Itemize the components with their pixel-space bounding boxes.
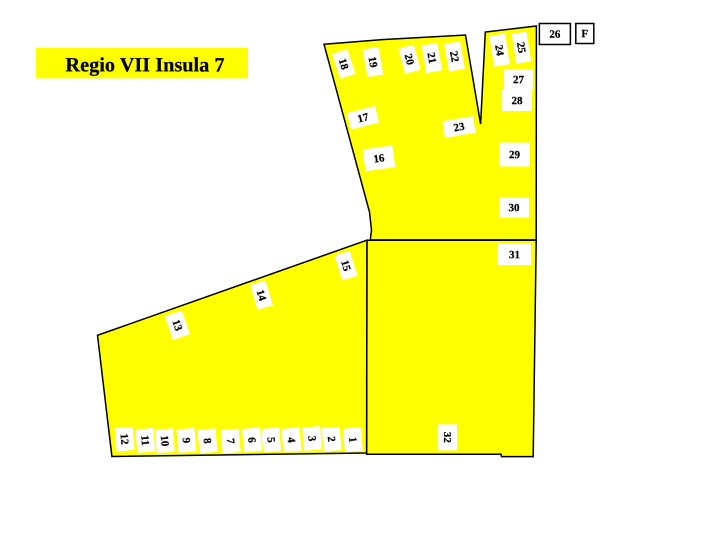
svg-text:1: 1 <box>346 436 358 443</box>
svg-text:16: 16 <box>373 152 386 165</box>
svg-text:26: 26 <box>549 29 561 41</box>
svg-text:32: 32 <box>441 432 453 444</box>
svg-text:28: 28 <box>511 95 523 107</box>
svg-text:11: 11 <box>138 435 151 446</box>
svg-text:21: 21 <box>424 52 438 65</box>
svg-text:12: 12 <box>118 433 131 446</box>
svg-text:30: 30 <box>508 202 520 214</box>
svg-text:10: 10 <box>158 435 171 448</box>
svg-text:27: 27 <box>513 74 525 86</box>
svg-text:Regio VII Insula 7: Regio VII Insula 7 <box>65 54 224 76</box>
svg-text:29: 29 <box>509 149 521 161</box>
svg-text:F: F <box>581 28 588 40</box>
svg-text:31: 31 <box>509 249 520 261</box>
